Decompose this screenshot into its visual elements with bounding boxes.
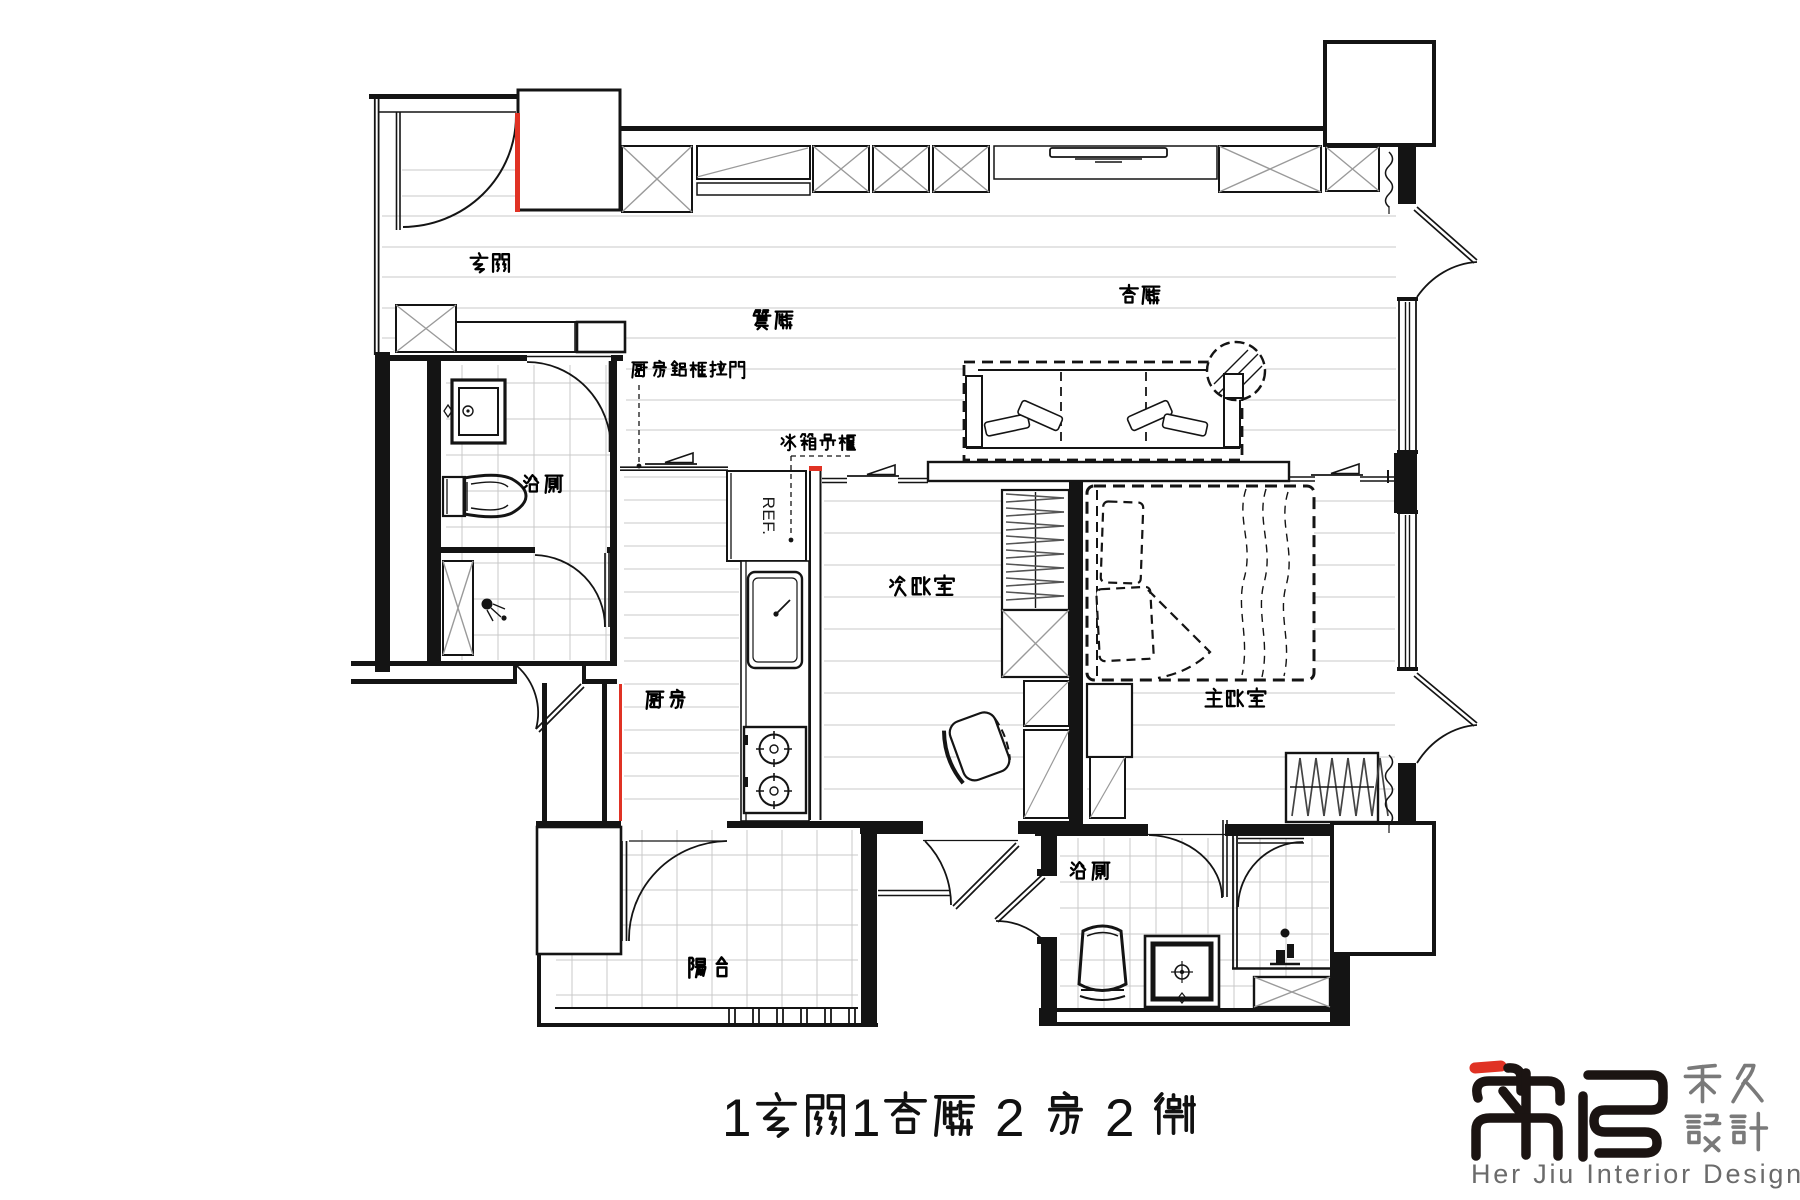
svg-text:2: 2	[1105, 1089, 1134, 1148]
svg-text:REF.: REF.	[759, 497, 778, 536]
svg-text:1: 1	[722, 1089, 751, 1148]
svg-text:Her Jiu Interior Design: Her Jiu Interior Design	[1471, 1159, 1800, 1189]
svg-text:1: 1	[851, 1089, 880, 1148]
svg-text:2: 2	[995, 1089, 1024, 1148]
